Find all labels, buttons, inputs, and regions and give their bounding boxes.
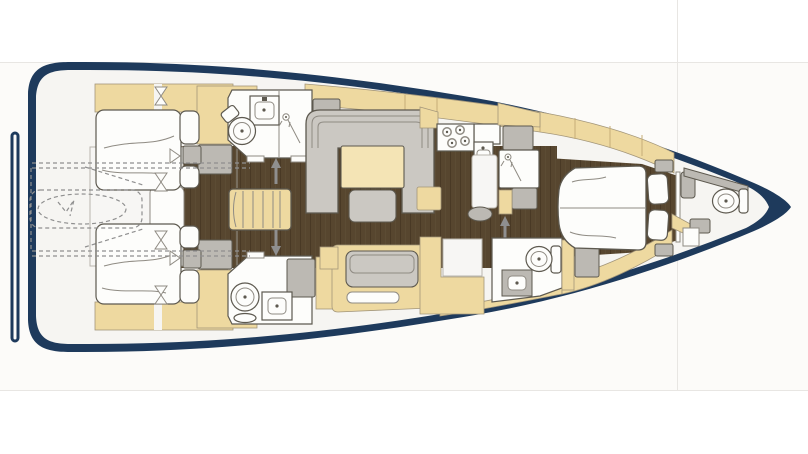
double-berth bbox=[96, 110, 181, 190]
cabinet bbox=[503, 126, 533, 150]
pillow bbox=[647, 173, 669, 204]
ottoman bbox=[349, 190, 396, 222]
pillow bbox=[180, 270, 199, 303]
toilet bbox=[526, 246, 561, 273]
toilet bbox=[713, 189, 749, 213]
pillow bbox=[647, 209, 669, 240]
galley-counter bbox=[472, 155, 497, 208]
locker bbox=[198, 240, 232, 269]
nav-seat bbox=[443, 239, 482, 276]
pillow bbox=[180, 111, 199, 144]
floor-hatch bbox=[468, 207, 492, 221]
washbasin bbox=[262, 292, 292, 320]
yacht-floorplan-image bbox=[0, 0, 808, 454]
washbasin bbox=[502, 270, 532, 296]
pillow bbox=[180, 166, 199, 188]
double-berth bbox=[96, 224, 181, 304]
pillow bbox=[180, 226, 199, 248]
floorplan-canvas bbox=[0, 0, 808, 454]
shelf bbox=[347, 292, 399, 303]
side-table bbox=[417, 187, 441, 210]
toilet bbox=[231, 283, 259, 323]
vanity bbox=[575, 246, 599, 277]
settee-cushion bbox=[346, 251, 418, 287]
saloon-table bbox=[341, 146, 404, 188]
locker bbox=[198, 145, 232, 174]
stove bbox=[437, 124, 474, 151]
nav-station bbox=[420, 237, 484, 314]
companionway-stairs bbox=[229, 189, 291, 230]
shower-panel bbox=[287, 259, 315, 297]
settee bbox=[320, 245, 430, 312]
washbasin bbox=[250, 96, 279, 125]
